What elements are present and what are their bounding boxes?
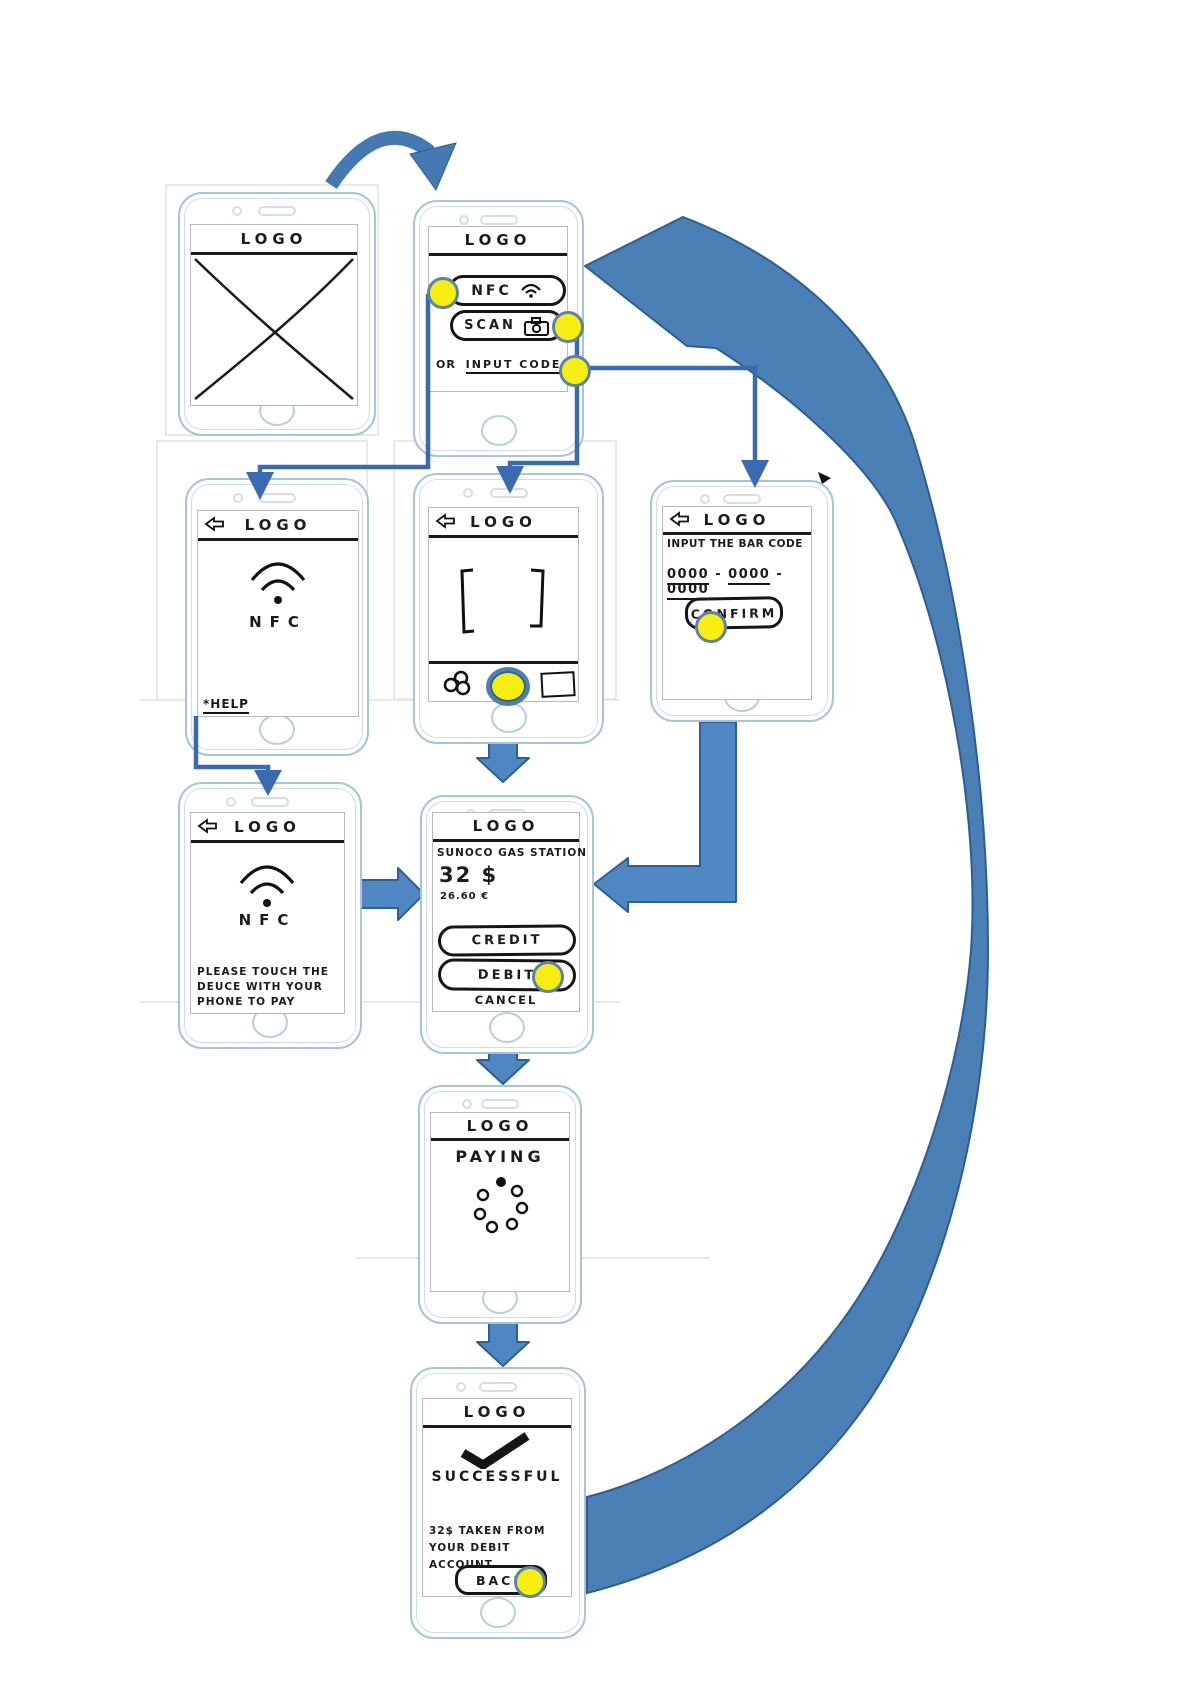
paying-to-success-arrow [477,1320,529,1366]
instruction-line: PHONE TO PAY [197,995,329,1010]
logo-header: LOGO [423,1399,571,1428]
back-arrow-icon[interactable] [203,516,225,532]
screen-input-code: LOGO INPUT THE BAR CODE 0000 - 0000 - 00… [662,506,812,700]
camera-icon [523,316,550,336]
cancel-button[interactable]: CANCEL [433,993,579,1007]
home-button [489,1012,525,1043]
tap-indicator-back [514,1566,546,1598]
tap-indicator-confirm [695,611,727,643]
scan-button[interactable]: SCAN [450,310,564,341]
touch-instruction: PLEASE TOUCH THE DEUCE WITH YOUR PHONE T… [197,965,329,1010]
loading-spinner-icon [470,1175,530,1237]
screen-scan: LOGO [428,507,579,702]
tap-indicator-input-code [559,355,591,387]
mobile-payment-flow-wireframe: LOGO LOGO NFC SCAN OR [0,0,1200,1697]
tap-indicator-scan [552,311,584,343]
home-button [259,714,295,745]
barcode-instruction: INPUT THE BAR CODE [667,538,803,550]
barcode-input-field[interactable]: 0000 - 0000 - 0000 [667,567,811,597]
detail-line: 32$ TAKEN FROM [429,1523,571,1540]
or-label: OR [436,358,456,371]
inputcode-to-payment-arrow [594,722,736,912]
gallery-icon[interactable] [442,669,472,697]
code-separator: - [776,567,783,582]
home-button [480,1597,516,1628]
screen-success: LOGO SUCCESSFUL 32$ TAKEN FROM YOUR DEBI… [422,1398,572,1597]
screen-splash: LOGO [190,224,358,406]
home-button [491,702,527,733]
thumbnail-icon[interactable] [540,671,575,698]
screen-home: LOGO NFC SCAN OR INPUT CODE [428,226,568,392]
placeholder-x-icon [191,255,357,403]
code-group: 0000 [728,567,770,585]
screen-paying: LOGO PAYING [430,1112,570,1292]
logo-header: LOGO [191,225,357,255]
home-button [481,415,517,446]
code-separator: - [715,567,722,582]
nfc-signal-icon [235,859,299,911]
camera-bar-divider [429,661,578,664]
or-input-code-row: OR INPUT CODE [436,358,561,371]
scan-button-label: SCAN [464,318,516,333]
nfc-to-payment-arrow [353,868,424,920]
logo-header: LOGO [429,227,567,256]
merchant-name: SUNOCO GAS STATION [437,847,587,859]
tap-indicator-nfc [427,277,459,309]
nfc-label: NFC [191,911,344,929]
screen-nfc-pay: LOGO NFC PLEASE TOUCH THE DEUCE WITH YOU… [190,812,345,1014]
input-code-link[interactable]: INPUT CODE [466,358,562,374]
back-arrow-icon[interactable] [434,513,456,529]
nfc-button-label: NFC [471,283,512,299]
back-arrow-icon[interactable] [196,818,218,834]
credit-button-label: CREDIT [471,933,542,949]
loop-return-arrow [585,217,988,1593]
shutter-button[interactable] [486,667,530,706]
screen-nfc-detect: LOGO NFC *HELP [197,510,359,717]
viewfinder-brackets-icon [457,566,549,638]
logo-header: LOGO [431,1113,569,1141]
debit-button-label: DEBIT [478,967,536,983]
amount-eur: 26.60 € [440,891,489,902]
nfc-label: NFC [198,613,358,631]
back-arrow-icon[interactable] [668,511,690,527]
success-status: SUCCESSFUL [423,1469,571,1485]
nfc-button[interactable]: NFC [448,275,566,306]
logo-header: LOGO [433,813,579,842]
credit-button[interactable]: CREDIT [438,924,576,956]
tap-indicator-debit [532,961,564,993]
nfc-signal-icon [519,282,543,299]
checkmark-icon [457,1431,535,1469]
paying-status: PAYING [431,1147,569,1166]
instruction-line: PLEASE TOUCH THE [197,965,329,980]
nfc-signal-icon [246,556,310,608]
instruction-line: DEUCE WITH YOUR [197,980,329,995]
amount-usd: 32 $ [439,863,498,887]
help-link[interactable]: *HELP [203,697,249,714]
